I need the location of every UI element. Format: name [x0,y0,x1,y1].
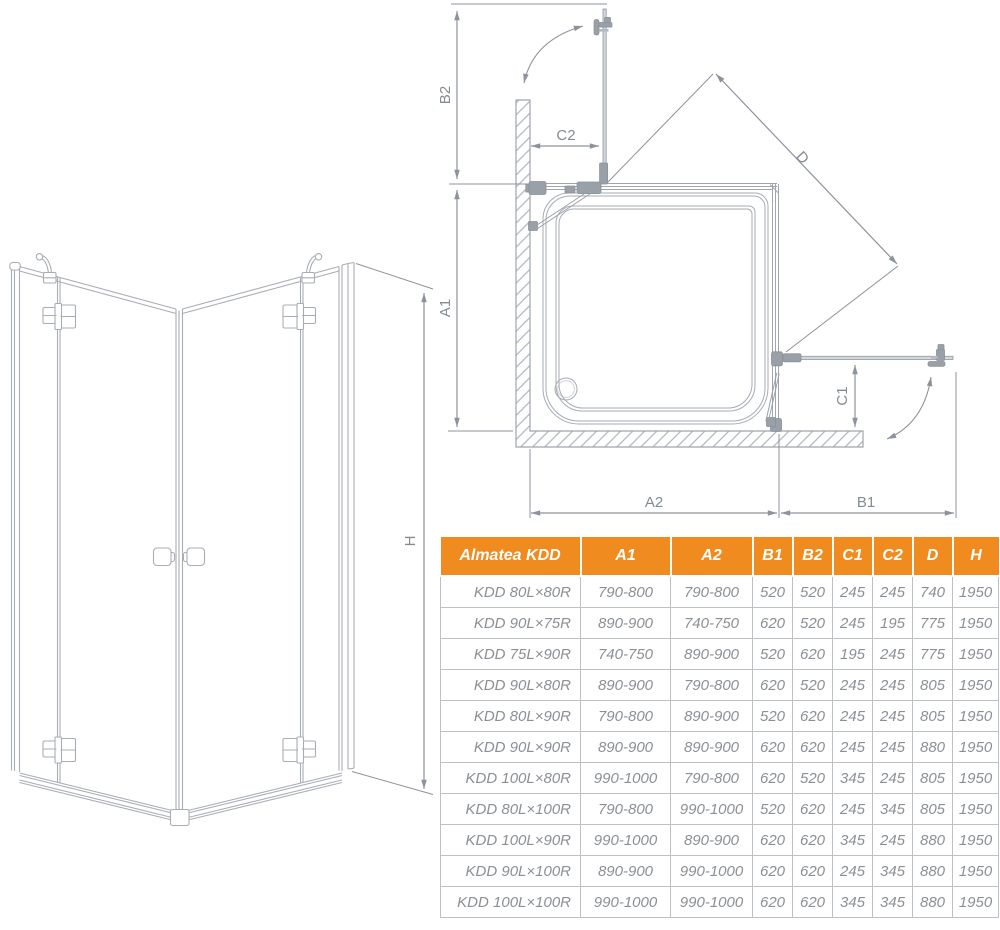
value-cell: 1950 [953,576,999,608]
value-cell: 520 [793,608,833,639]
left-glass-top-edge [20,267,177,314]
value-cell: 805 [913,701,953,732]
value-cell: 195 [873,608,913,639]
value-cell: 775 [913,608,953,639]
right-door-swing-arc [887,377,931,439]
value-cell: 620 [793,701,833,732]
value-cell: 890-900 [581,856,671,887]
wall-hatch [516,100,863,447]
value-cell: 520 [753,639,793,670]
right-glass-top-edge [183,267,340,314]
value-cell: 620 [753,732,793,763]
value-cell: 775 [913,639,953,670]
value-cell: 620 [793,794,833,825]
label-a2: A2 [645,494,663,511]
header-d: D [913,537,953,576]
left-support-arm [36,254,56,283]
value-cell: 990-1000 [581,825,671,856]
left-door-edge [58,277,61,784]
value-cell: 740-750 [581,639,671,670]
right-door-open [766,345,953,432]
left-door-open [594,9,612,184]
value-cell: 245 [833,732,873,763]
value-cell: 345 [873,794,913,825]
dim-d [716,74,897,264]
value-cell: 880 [913,825,953,856]
value-cell: 1950 [953,670,999,701]
value-cell: 245 [833,576,873,608]
right-wall-profile [339,263,354,772]
value-cell: 890-900 [581,670,671,701]
value-cell: 620 [753,825,793,856]
value-cell: 1950 [953,608,999,639]
label-c2: C2 [556,127,575,144]
value-cell: 805 [913,670,953,701]
value-cell: 245 [873,701,913,732]
value-cell: 620 [793,856,833,887]
value-cell: 245 [873,763,913,794]
left-door-pivot [600,163,608,184]
right-bottom-hinge [283,737,316,763]
label-b2: B2 [437,86,454,104]
table-row: KDD 75L×90R740-750890-900520620195245775… [441,639,999,670]
header-b2: B2 [793,537,833,576]
value-cell: 245 [833,608,873,639]
model-cell: KDD 75L×90R [441,639,581,670]
value-cell: 620 [753,887,793,918]
right-support-arm [302,254,322,283]
value-cell: 790-800 [671,576,753,608]
header-series: Almatea KDD [441,537,581,576]
model-cell: KDD 100L×90R [441,825,581,856]
bottom-rails [20,773,343,826]
value-cell: 620 [753,670,793,701]
value-cell: 890-900 [581,608,671,639]
value-cell: 890-900 [671,732,753,763]
value-cell: 195 [833,639,873,670]
value-cell: 345 [833,887,873,918]
value-cell: 1950 [953,701,999,732]
left-top-hinge [43,304,76,330]
model-cell: KDD 80L×100R [441,794,581,825]
right-door-handle [928,345,945,367]
right-top-hinge [283,304,316,330]
value-cell: 620 [793,825,833,856]
model-cell: KDD 90L×90R [441,732,581,763]
right-door-pivot [772,352,783,366]
value-cell: 790-800 [671,763,753,794]
value-cell: 1950 [953,856,999,887]
left-door-swing-arc [524,26,583,83]
value-cell: 740-750 [671,608,753,639]
value-cell: 1950 [953,825,999,856]
value-cell: 990-1000 [581,763,671,794]
table-row: KDD 90L×100R890-900990-10006206202453458… [441,856,999,887]
value-cell: 805 [913,763,953,794]
value-cell: 890-900 [671,639,753,670]
value-cell: 245 [873,825,913,856]
value-cell: 620 [793,887,833,918]
value-cell: 620 [753,763,793,794]
table-row: KDD 100L×90R990-1000890-9006206203452458… [441,825,999,856]
value-cell: 345 [833,763,873,794]
table-row: KDD 100L×100R990-1000990-100062062034534… [441,887,999,918]
value-cell: 740 [913,576,953,608]
value-cell: 245 [833,670,873,701]
value-cell: 345 [873,887,913,918]
header-b1: B1 [753,537,793,576]
label-d: D [792,148,812,168]
dim-h [352,264,433,795]
model-cell: KDD 100L×100R [441,887,581,918]
value-cell: 620 [793,639,833,670]
corner-joint [176,309,183,818]
value-cell: 1950 [953,732,999,763]
model-cell: KDD 90L×100R [441,856,581,887]
value-cell: 520 [793,670,833,701]
label-b1: B1 [857,494,875,511]
header-a2: A2 [671,537,753,576]
value-cell: 990-1000 [671,794,753,825]
value-cell: 790-800 [581,701,671,732]
value-cell: 245 [873,639,913,670]
table-row: KDD 90L×90R890-900890-900620620245245880… [441,732,999,763]
value-cell: 245 [833,856,873,887]
label-h: H [402,536,419,547]
model-cell: KDD 100L×80R [441,763,581,794]
value-cell: 245 [873,576,913,608]
value-cell: 620 [793,732,833,763]
value-cell: 790-800 [671,670,753,701]
value-cell: 245 [833,794,873,825]
table-header-row: Almatea KDD A1 A2 B1 B2 C1 C2 D H [441,537,999,576]
tray-drain [555,378,577,400]
label-c1: C1 [834,386,851,405]
value-cell: 990-1000 [671,856,753,887]
table-row: KDD 100L×80R990-1000790-8006205203452458… [441,763,999,794]
value-cell: 790-800 [581,794,671,825]
model-cell: KDD 90L×80R [441,670,581,701]
value-cell: 520 [753,794,793,825]
value-cell: 880 [913,887,953,918]
value-cell: 1950 [953,639,999,670]
table-row: KDD 90L×75R890-900740-750620520245195775… [441,608,999,639]
value-cell: 520 [753,701,793,732]
header-c1: C1 [833,537,873,576]
right-door-edge [301,276,304,783]
value-cell: 1950 [953,763,999,794]
value-cell: 345 [833,825,873,856]
table-row: KDD 80L×100R790-800990-10005206202453458… [441,794,999,825]
value-cell: 990-1000 [581,887,671,918]
product-spec-sheet: B2 A1 C2 C1 A2 B1 D [0,0,1000,930]
table-row: KDD 80L×80R790-800790-800520520245245740… [441,576,999,608]
left-bottom-hinge [43,737,76,763]
header-h: H [953,537,999,576]
value-cell: 805 [913,794,953,825]
value-cell: 1950 [953,794,999,825]
spec-table-body: KDD 80L×80R790-800790-800520520245245740… [441,576,999,918]
value-cell: 245 [833,701,873,732]
value-cell: 245 [873,732,913,763]
enclosure-rails [531,184,779,431]
table-row: KDD 90L×80R890-900790-800620520245245805… [441,670,999,701]
value-cell: 880 [913,856,953,887]
value-cell: 890-900 [671,701,753,732]
model-cell: KDD 90L×75R [441,608,581,639]
value-cell: 890-900 [671,825,753,856]
spec-table: Almatea KDD A1 A2 B1 B2 C1 C2 D H KDD 80… [440,537,999,918]
value-cell: 790-800 [581,576,671,608]
enclosure-3d-drawing: H [0,240,440,930]
value-cell: 345 [873,856,913,887]
shower-tray [543,193,768,424]
header-c2: C2 [873,537,913,576]
value-cell: 990-1000 [671,887,753,918]
model-cell: KDD 80L×90R [441,701,581,732]
value-cell: 880 [913,732,953,763]
value-cell: 890-900 [581,732,671,763]
left-wall-profile [10,263,20,773]
value-cell: 1950 [953,887,999,918]
value-cell: 520 [753,576,793,608]
model-cell: KDD 80L×80R [441,576,581,608]
value-cell: 520 [793,576,833,608]
value-cell: 620 [753,608,793,639]
value-cell: 620 [753,856,793,887]
table-row: KDD 80L×90R790-800890-900520620245245805… [441,701,999,732]
top-view-diagram: B2 A1 C2 C1 A2 B1 D [430,0,1000,530]
spec-table-container: Almatea KDD A1 A2 B1 B2 C1 C2 D H KDD 80… [440,537,998,918]
header-a1: A1 [581,537,671,576]
value-cell: 520 [793,763,833,794]
value-cell: 245 [873,670,913,701]
